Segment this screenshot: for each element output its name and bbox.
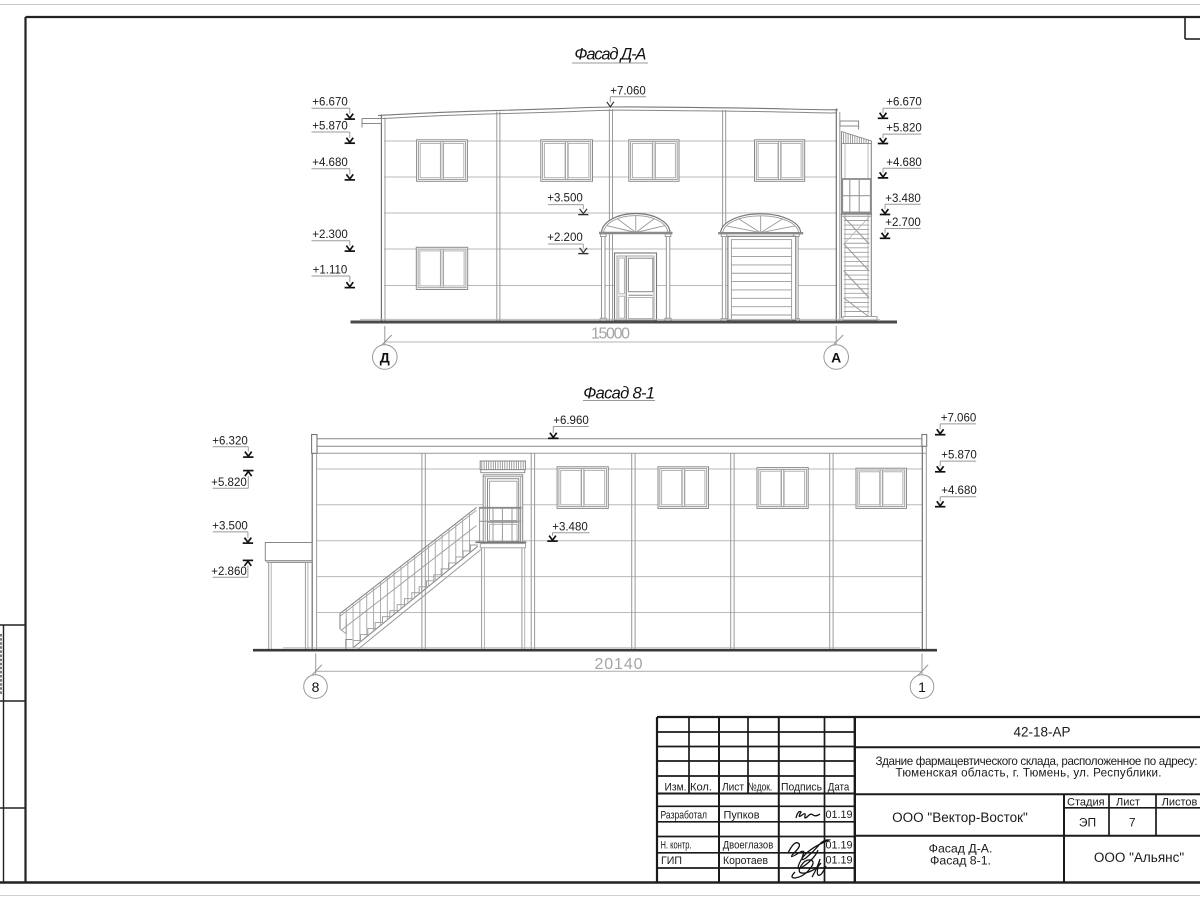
svg-text:+6.670: +6.670 [312,97,348,109]
svg-text:+4.680: +4.680 [886,157,922,169]
svg-text:Фасад 8-1.: Фасад 8-1. [930,854,991,868]
svg-text:8: 8 [312,679,320,695]
svg-text:+3.480: +3.480 [552,521,588,533]
svg-text:А: А [831,349,841,365]
svg-text:+6.670: +6.670 [886,97,922,109]
svg-text:Коротаев: Коротаев [723,855,768,867]
svg-text:+3.500: +3.500 [212,520,248,532]
svg-text:Фасад Д-А: Фасад Д-А [574,46,646,64]
svg-text:+1.110: +1.110 [313,265,348,277]
svg-text:01.19: 01.19 [825,839,852,851]
svg-text:+6.960: +6.960 [553,415,589,427]
svg-text:Лист: Лист [722,782,744,794]
svg-text:+5.870: +5.870 [312,121,348,133]
svg-text:Кол.: Кол. [690,782,712,794]
svg-text:+2.300: +2.300 [312,229,348,241]
svg-text:15000: 15000 [591,325,630,342]
svg-text:+4.680: +4.680 [941,485,977,497]
svg-text:+2.860: +2.860 [211,566,247,578]
svg-text:7: 7 [1129,815,1136,829]
svg-text:ЭП: ЭП [1079,815,1096,829]
svg-text:+7.060: +7.060 [941,412,977,424]
svg-text:Подпись: Подпись [781,782,822,794]
svg-text:Двоеглазов: Двоеглазов [723,840,774,852]
svg-text:01.19: 01.19 [825,809,852,821]
svg-text:Н. контр.: Н. контр. [661,840,692,852]
svg-text:+4.680: +4.680 [312,157,348,169]
svg-text:+5.820: +5.820 [211,477,247,489]
svg-text:Д: Д [380,349,390,365]
svg-text:Изм.: Изм. [665,782,687,794]
svg-text:Дата: Дата [828,782,850,794]
svg-text:42-18-АР: 42-18-АР [1013,725,1070,740]
svg-text:ООО "Вектор-Восток": ООО "Вектор-Восток" [892,810,1028,825]
svg-text:Фасад 8-1: Фасад 8-1 [583,384,655,402]
svg-text:+6.320: +6.320 [212,435,248,447]
svg-text:ООО "Альянс": ООО "Альянс" [1094,850,1184,865]
svg-text:+5.870: +5.870 [941,450,977,462]
svg-text:01.19: 01.19 [825,855,852,867]
svg-text:+3.500: +3.500 [547,193,583,205]
svg-text:Стадия: Стадия [1067,797,1105,809]
svg-text:№док.: №док. [748,782,773,794]
svg-text:20140: 20140 [595,656,643,673]
svg-text:+7.060: +7.060 [610,86,646,98]
svg-text:Разработал: Разработал [661,809,708,821]
svg-text:Лист: Лист [1116,797,1140,809]
svg-text:Тюменская область, г. Тюмень,: Тюменская область, г. Тюмень, ул. Респуб… [896,767,1162,780]
svg-text:+3.480: +3.480 [885,193,921,205]
svg-text:ГИП: ГИП [661,855,682,867]
svg-text:1: 1 [918,679,926,695]
svg-text:+2.700: +2.700 [885,217,921,229]
svg-text:Пупков: Пупков [724,809,760,821]
svg-text:+2.200: +2.200 [547,232,583,244]
svg-text:Листов: Листов [1162,796,1198,808]
svg-text:+5.820: +5.820 [886,123,922,135]
